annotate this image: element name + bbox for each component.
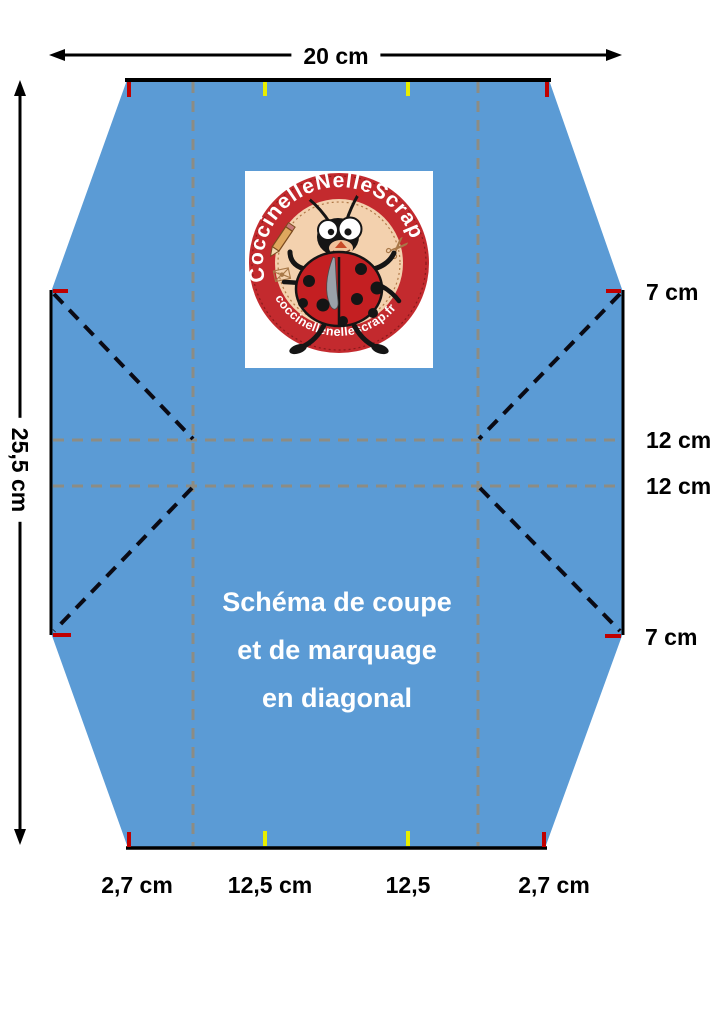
dim-label-right-top-corner: 7 cm [646,278,698,306]
dim-label-right-lower-middle: 12 cm [646,472,711,500]
body-spot [371,282,384,295]
antenna-ball-right [356,189,364,197]
dim-label-bottom-left-corner: 2,7 cm [101,871,173,899]
logo-badge: CoccinelleNelleScrap coccinellenellescra… [245,171,433,368]
caption-line-1: Schéma de coupe [222,578,452,626]
dim-label-right-bottom-corner: 7 cm [645,623,697,651]
body-spot [338,316,348,326]
diagram-caption: Schéma de coupe et de marquage en diagon… [222,578,452,722]
body-spot [303,275,315,287]
body-spot [351,293,363,305]
pupil-right [344,228,351,235]
eye-left [318,220,338,240]
eye-right [339,218,362,241]
body-spot [368,308,378,318]
dim-label-bottom-left-middle: 12,5 cm [228,871,312,899]
body-spot [317,299,330,312]
body-spot [355,263,367,275]
pupil-left [328,229,334,235]
cutting-diagram-page: 20 cm 25,5 cm 7 cm 12 cm 12 cm 7 cm 2,7 … [0,0,724,1024]
dim-label-right-upper-middle: 12 cm [646,426,711,454]
dim-label-bottom-right-corner: 2,7 cm [518,871,590,899]
caption-line-2: et de marquage [222,626,452,674]
body-spot [298,298,308,308]
caption-line-3: en diagonal [222,674,452,722]
dim-label-left-height: 25,5 cm [6,418,34,522]
dim-label-top-width: 20 cm [291,42,380,70]
antenna-ball-left [303,193,311,201]
dim-label-bottom-right-middle: 12,5 [386,871,431,899]
